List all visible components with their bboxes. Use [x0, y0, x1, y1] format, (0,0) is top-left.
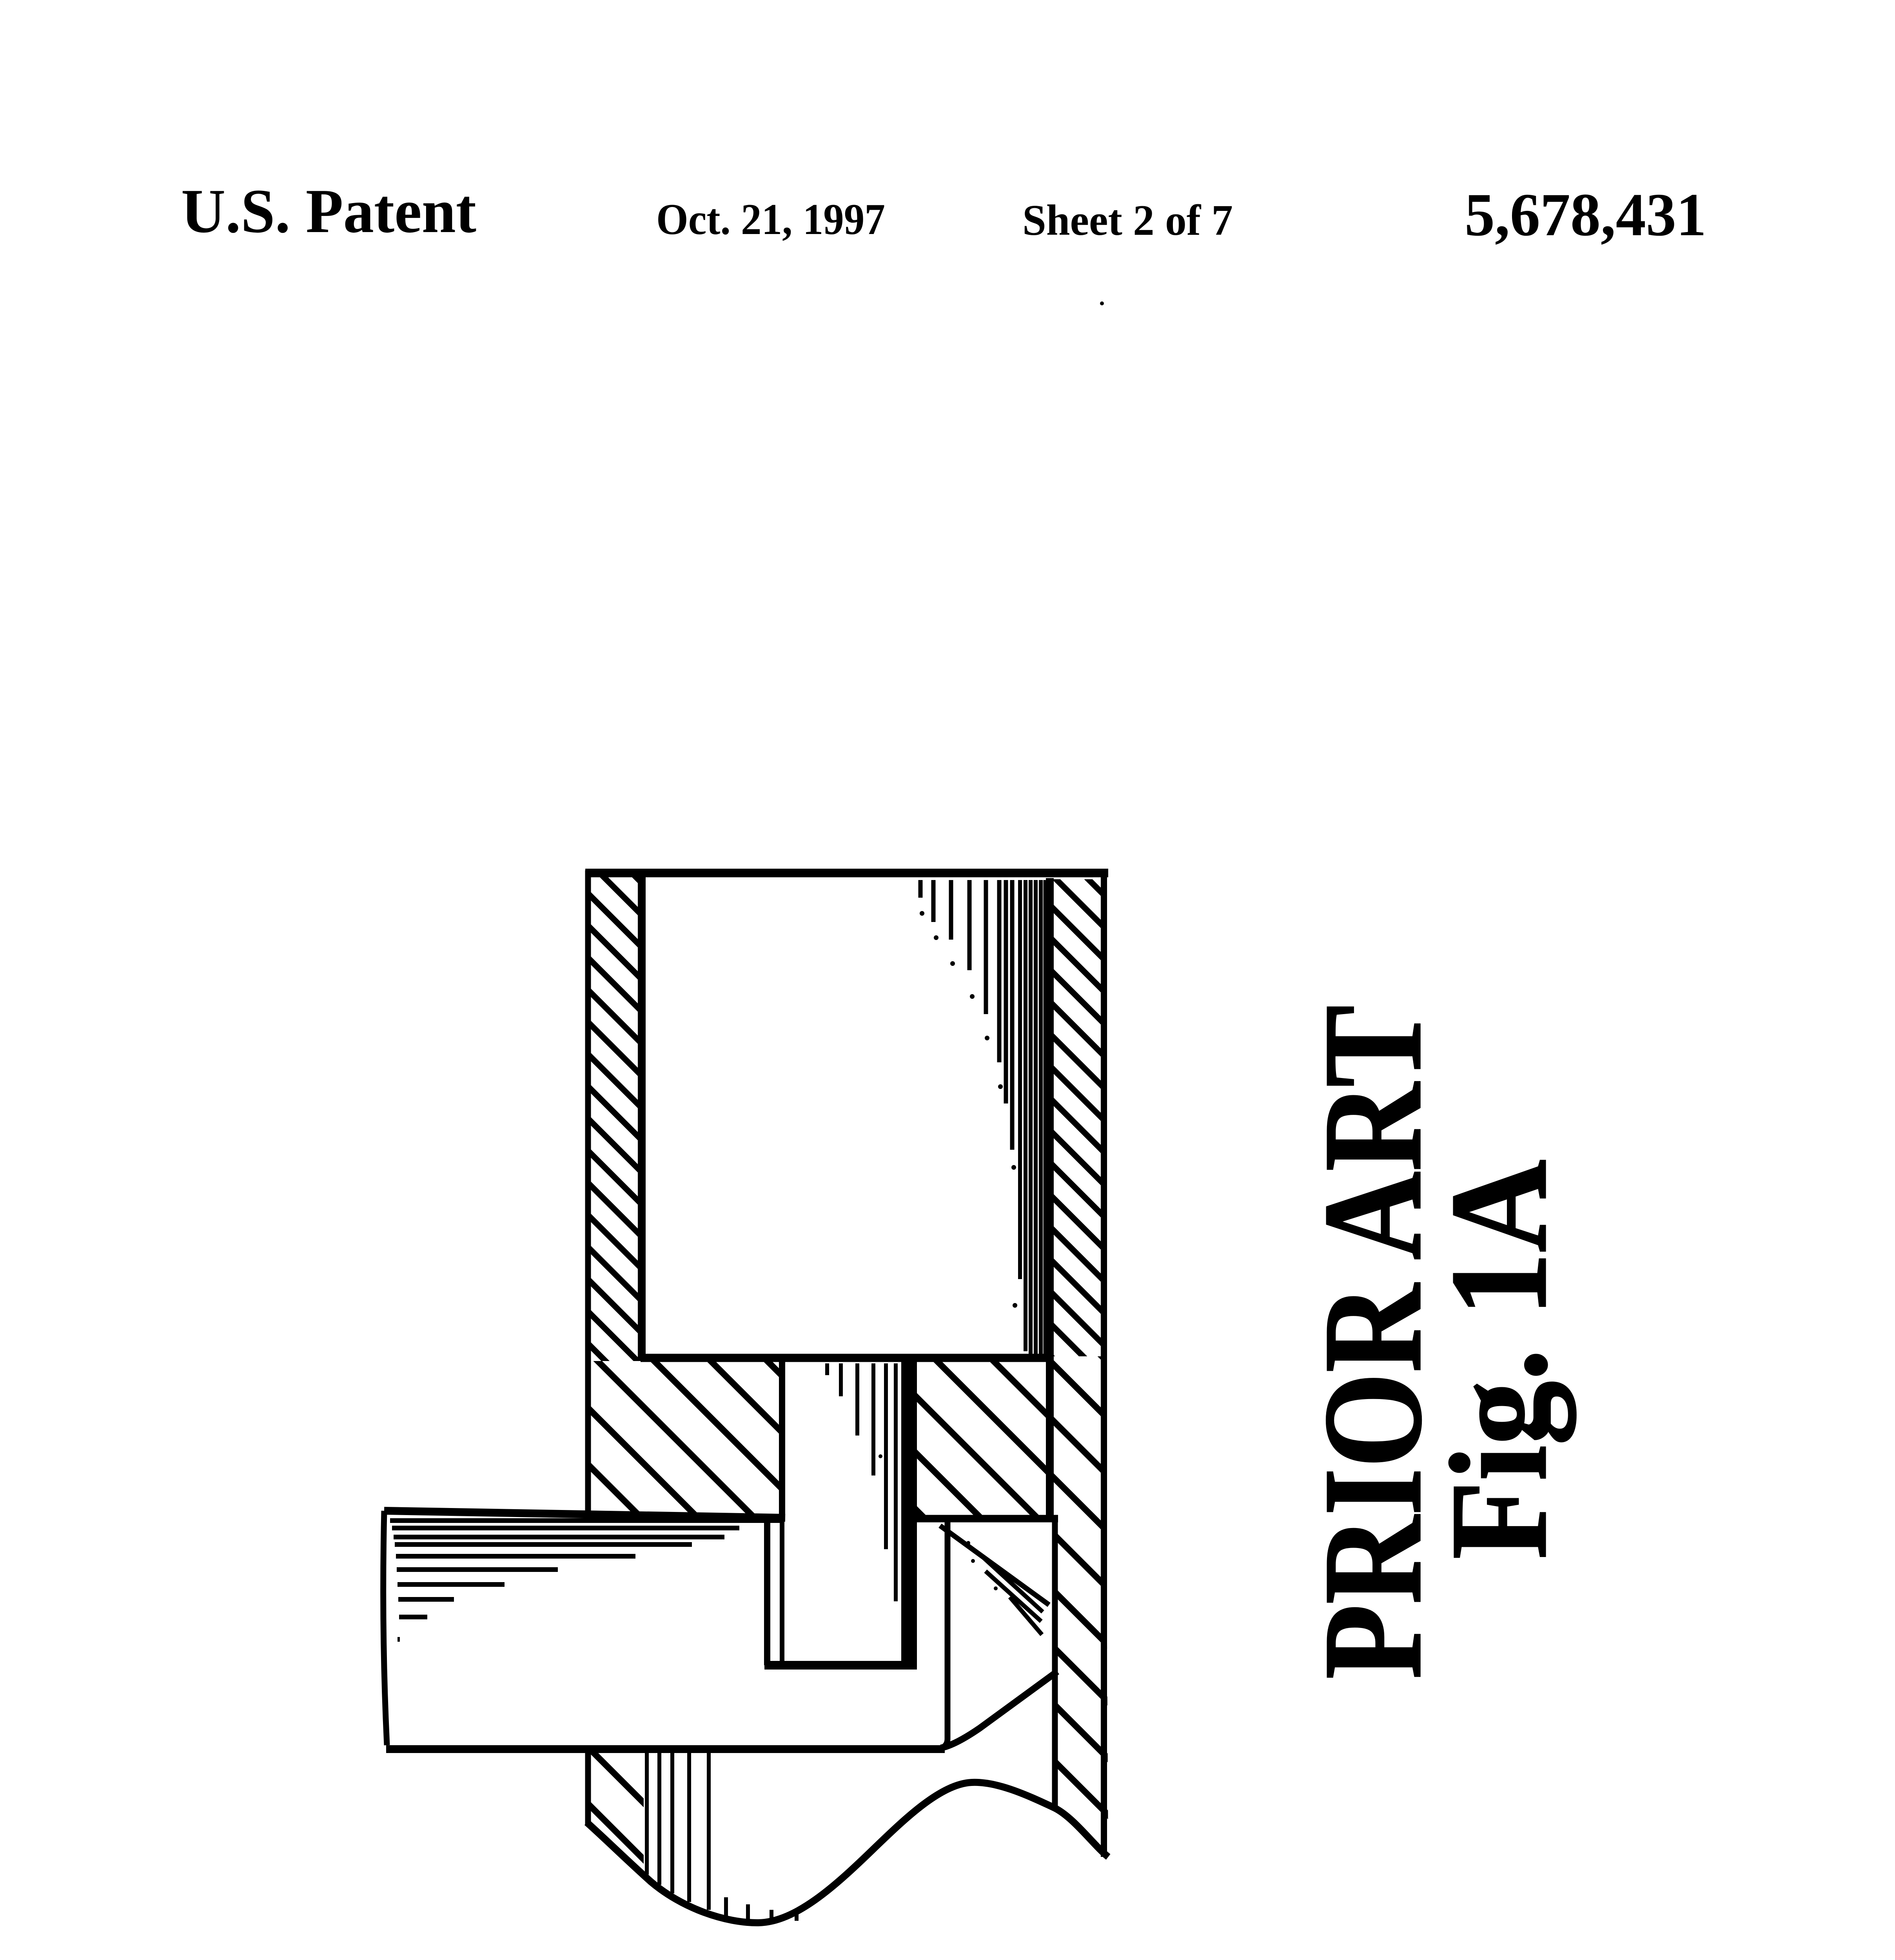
svg-text:Sheet 2 of 7: Sheet 2 of 7	[1022, 196, 1233, 245]
svg-text:Fig. 1A: Fig. 1A	[1422, 1160, 1578, 1559]
svg-text:Oct. 21, 1997: Oct. 21, 1997	[656, 195, 885, 244]
svg-text:5,678,431: 5,678,431	[1465, 181, 1706, 249]
svg-text:U.S. Patent: U.S. Patent	[181, 176, 476, 246]
